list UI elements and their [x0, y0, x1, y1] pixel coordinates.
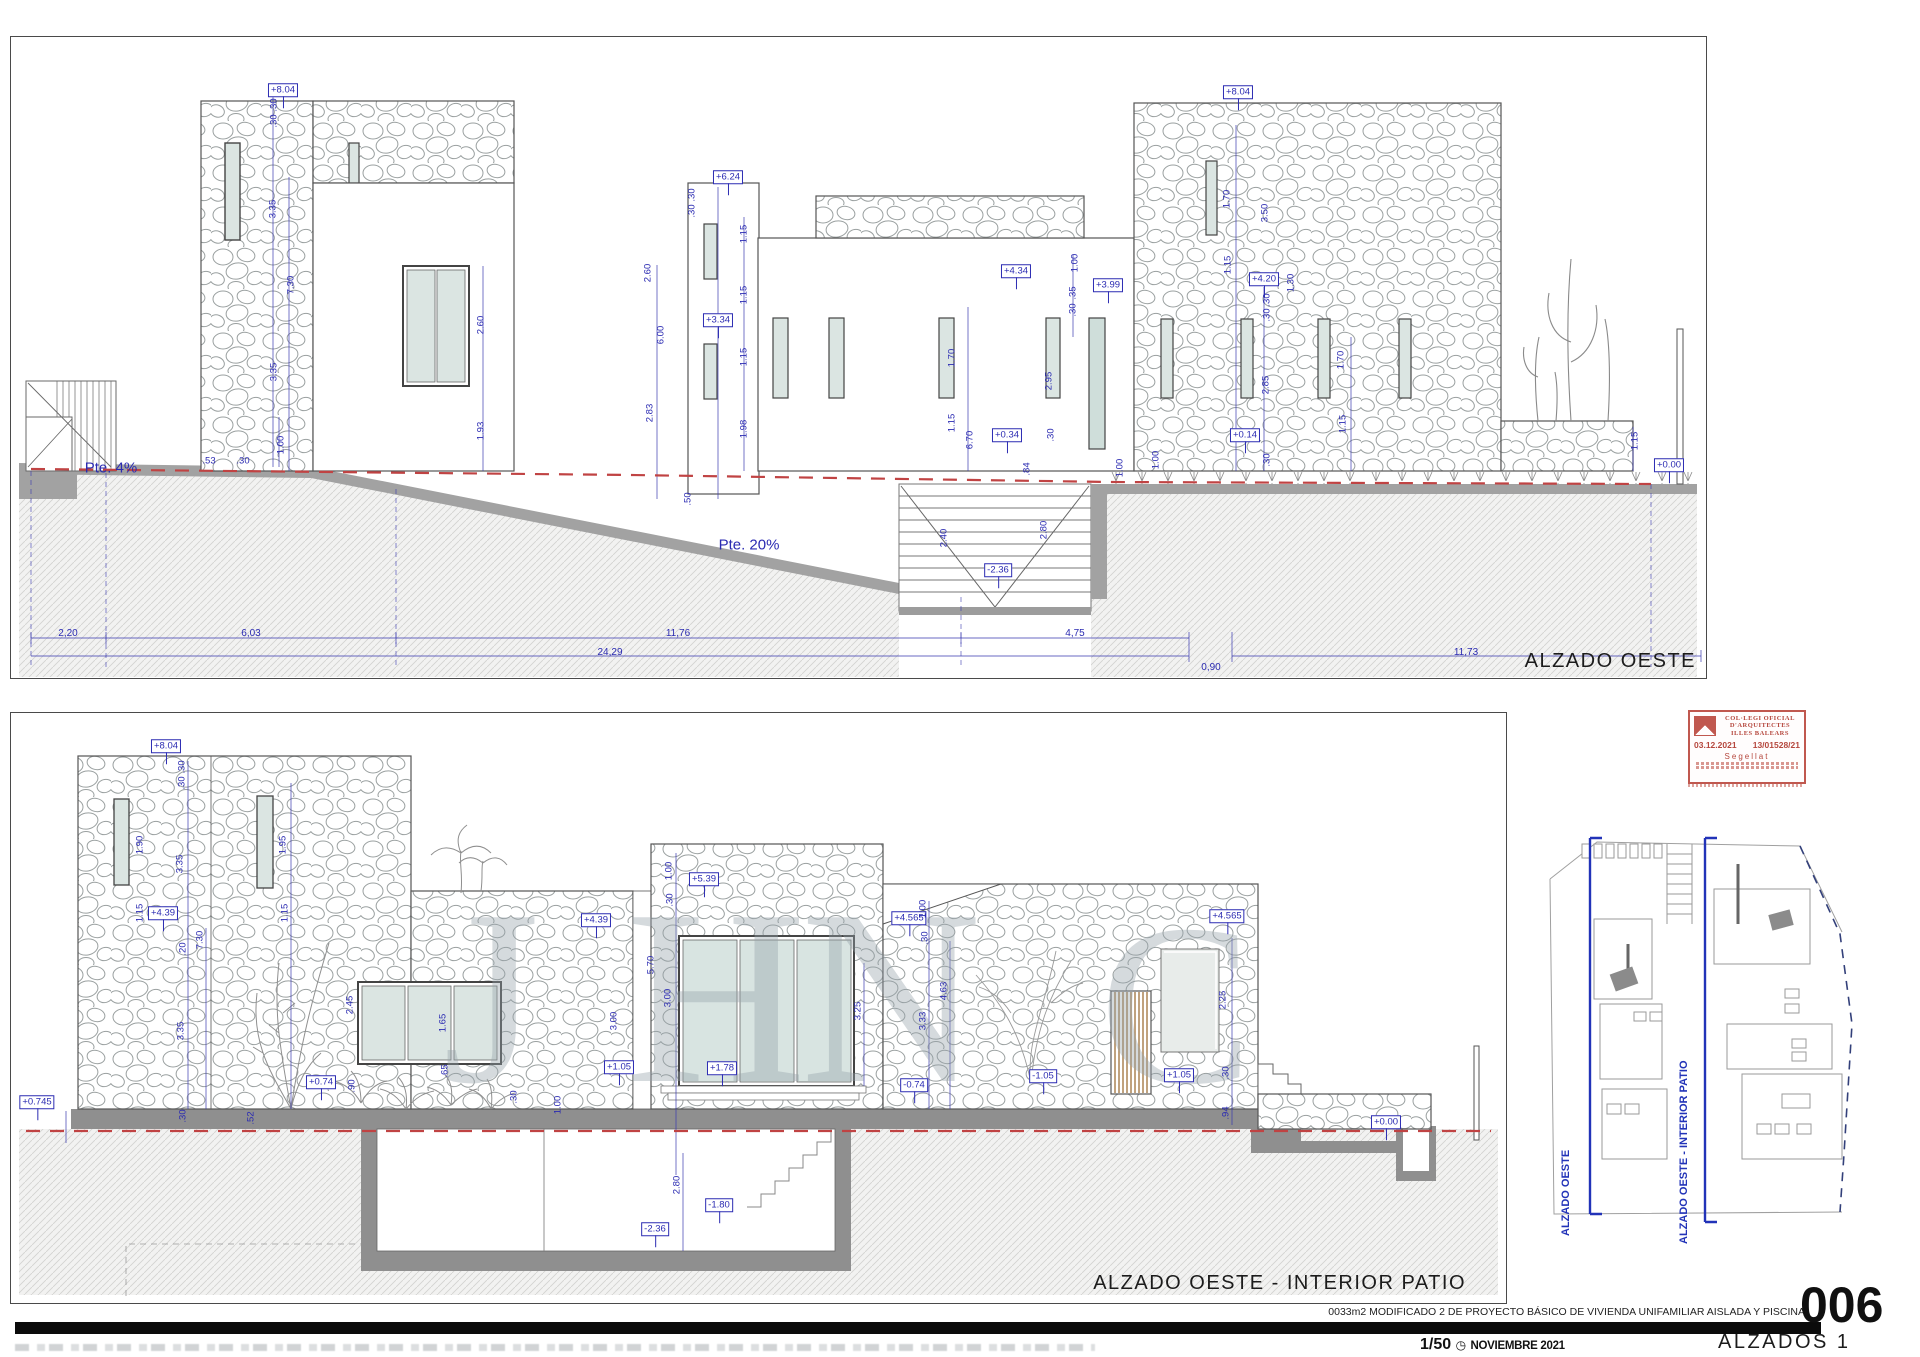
- stamp-microtext-under: [1688, 784, 1802, 787]
- slope-label-20: Pte. 20%: [719, 537, 780, 554]
- illegible-footer-text: [15, 1344, 1095, 1351]
- slot-window: [349, 143, 359, 183]
- title-bar: [15, 1322, 1821, 1334]
- elevation-panel-patio: ALZADO OESTE - INTERIOR PATIO JHNC+8.04+…: [10, 712, 1507, 1304]
- exterior-steps: [1258, 1064, 1301, 1094]
- key-plan: ALZADO OESTE ALZADO OESTE - INTERIOR PAT…: [1542, 824, 1877, 1244]
- section-label-patio: ALZADO OESTE - INTERIOR PATIO: [1678, 1060, 1690, 1244]
- basement-section: [361, 1129, 851, 1271]
- stamp-microtext: [1696, 762, 1798, 765]
- sheet-number: 006: [1800, 1280, 1883, 1330]
- key-plan-drawing: [1542, 824, 1877, 1244]
- stone-band: [816, 196, 1084, 238]
- entry-gate: [26, 381, 116, 471]
- retaining-wall: [1091, 484, 1107, 599]
- patio-right: [1258, 1046, 1479, 1140]
- frosted-panel: [1161, 949, 1219, 1052]
- left-step: [19, 471, 77, 499]
- sheet-name: ALZADOS 1: [1718, 1331, 1851, 1354]
- pergola-slats: [1582, 844, 1662, 858]
- sliding-glass-door: [679, 936, 854, 1086]
- center-tower: [651, 844, 883, 1109]
- slot-window: [704, 344, 717, 399]
- scale-and-date: 1/50 ◷ NOVIEMBRE 2021: [1420, 1336, 1565, 1354]
- floor-slab: [71, 1109, 1251, 1129]
- center-tower: [688, 183, 759, 494]
- post: [1677, 329, 1683, 484]
- step: [661, 1086, 866, 1093]
- stamp-seal-word: Segellat: [1690, 752, 1804, 761]
- slope-label-4: Pte. 4%: [85, 460, 138, 477]
- section-label-west: ALZADO OESTE: [1560, 1150, 1572, 1236]
- tall-glass: [1089, 318, 1105, 449]
- step: [668, 1093, 859, 1100]
- triple-window: [358, 982, 501, 1064]
- white-volume-left: [313, 183, 514, 471]
- terrain-section: [19, 463, 1697, 677]
- west-elevation-drawing: [11, 37, 1706, 678]
- elevation-title-west: ALZADO OESTE: [1525, 650, 1696, 673]
- slot-window: [257, 796, 273, 888]
- scale-value: 1/50: [1420, 1336, 1451, 1353]
- stamp-ref: 13/01528/21: [1753, 740, 1800, 750]
- stairs: [1667, 844, 1692, 924]
- cactus-plant: [1524, 259, 1610, 421]
- white-volume-center: [758, 196, 1134, 471]
- college-logo-icon: [1694, 716, 1716, 736]
- stamp-name-line1: COL·LEGI OFICIAL: [1716, 715, 1804, 722]
- stone-wall-right: [883, 884, 1258, 1109]
- architects-college-stamp: COL·LEGI OFICIAL D'ARQUITECTES ILLES BAL…: [1688, 710, 1806, 784]
- post: [1474, 1046, 1479, 1140]
- planter-cactus: [1501, 259, 1683, 484]
- stamp-microtext: [1696, 766, 1798, 769]
- drawing-sheet: Pte. 4% Pte. 20% ALZADO OESTE +8.04+6.24…: [0, 0, 1920, 1357]
- clock-icon: ◷: [1456, 1338, 1466, 1352]
- stone-wall-left: [78, 756, 651, 1109]
- stamp-name-line2: D'ARQUITECTES: [1716, 722, 1804, 729]
- stamp-date: 03.12.2021: [1694, 740, 1737, 750]
- low-stone-wall: [1258, 1094, 1431, 1129]
- building-plan: [1582, 844, 1842, 1159]
- stamp-name-line3: ILLES BALEARS: [1716, 730, 1804, 737]
- garage-ramp: [899, 484, 1107, 615]
- patio-elevation-drawing: [11, 713, 1506, 1303]
- elevation-panel-west: Pte. 4% Pte. 20% ALZADO OESTE +8.04+6.24…: [10, 36, 1707, 679]
- slot-window: [225, 143, 240, 240]
- double-window: [403, 266, 469, 386]
- slot-window: [704, 224, 717, 279]
- elevation-title-patio: ALZADO OESTE - INTERIOR PATIO: [1093, 1272, 1466, 1295]
- slot-window: [114, 799, 129, 885]
- date-value: NOVIEMBRE 2021: [1471, 1340, 1565, 1352]
- wood-slat-door: [1111, 991, 1151, 1094]
- project-description: 0033m2 MODIFICADO 2 DE PROYECTO BÁSICO D…: [1328, 1306, 1805, 1318]
- stone-wall-right: [1134, 103, 1501, 471]
